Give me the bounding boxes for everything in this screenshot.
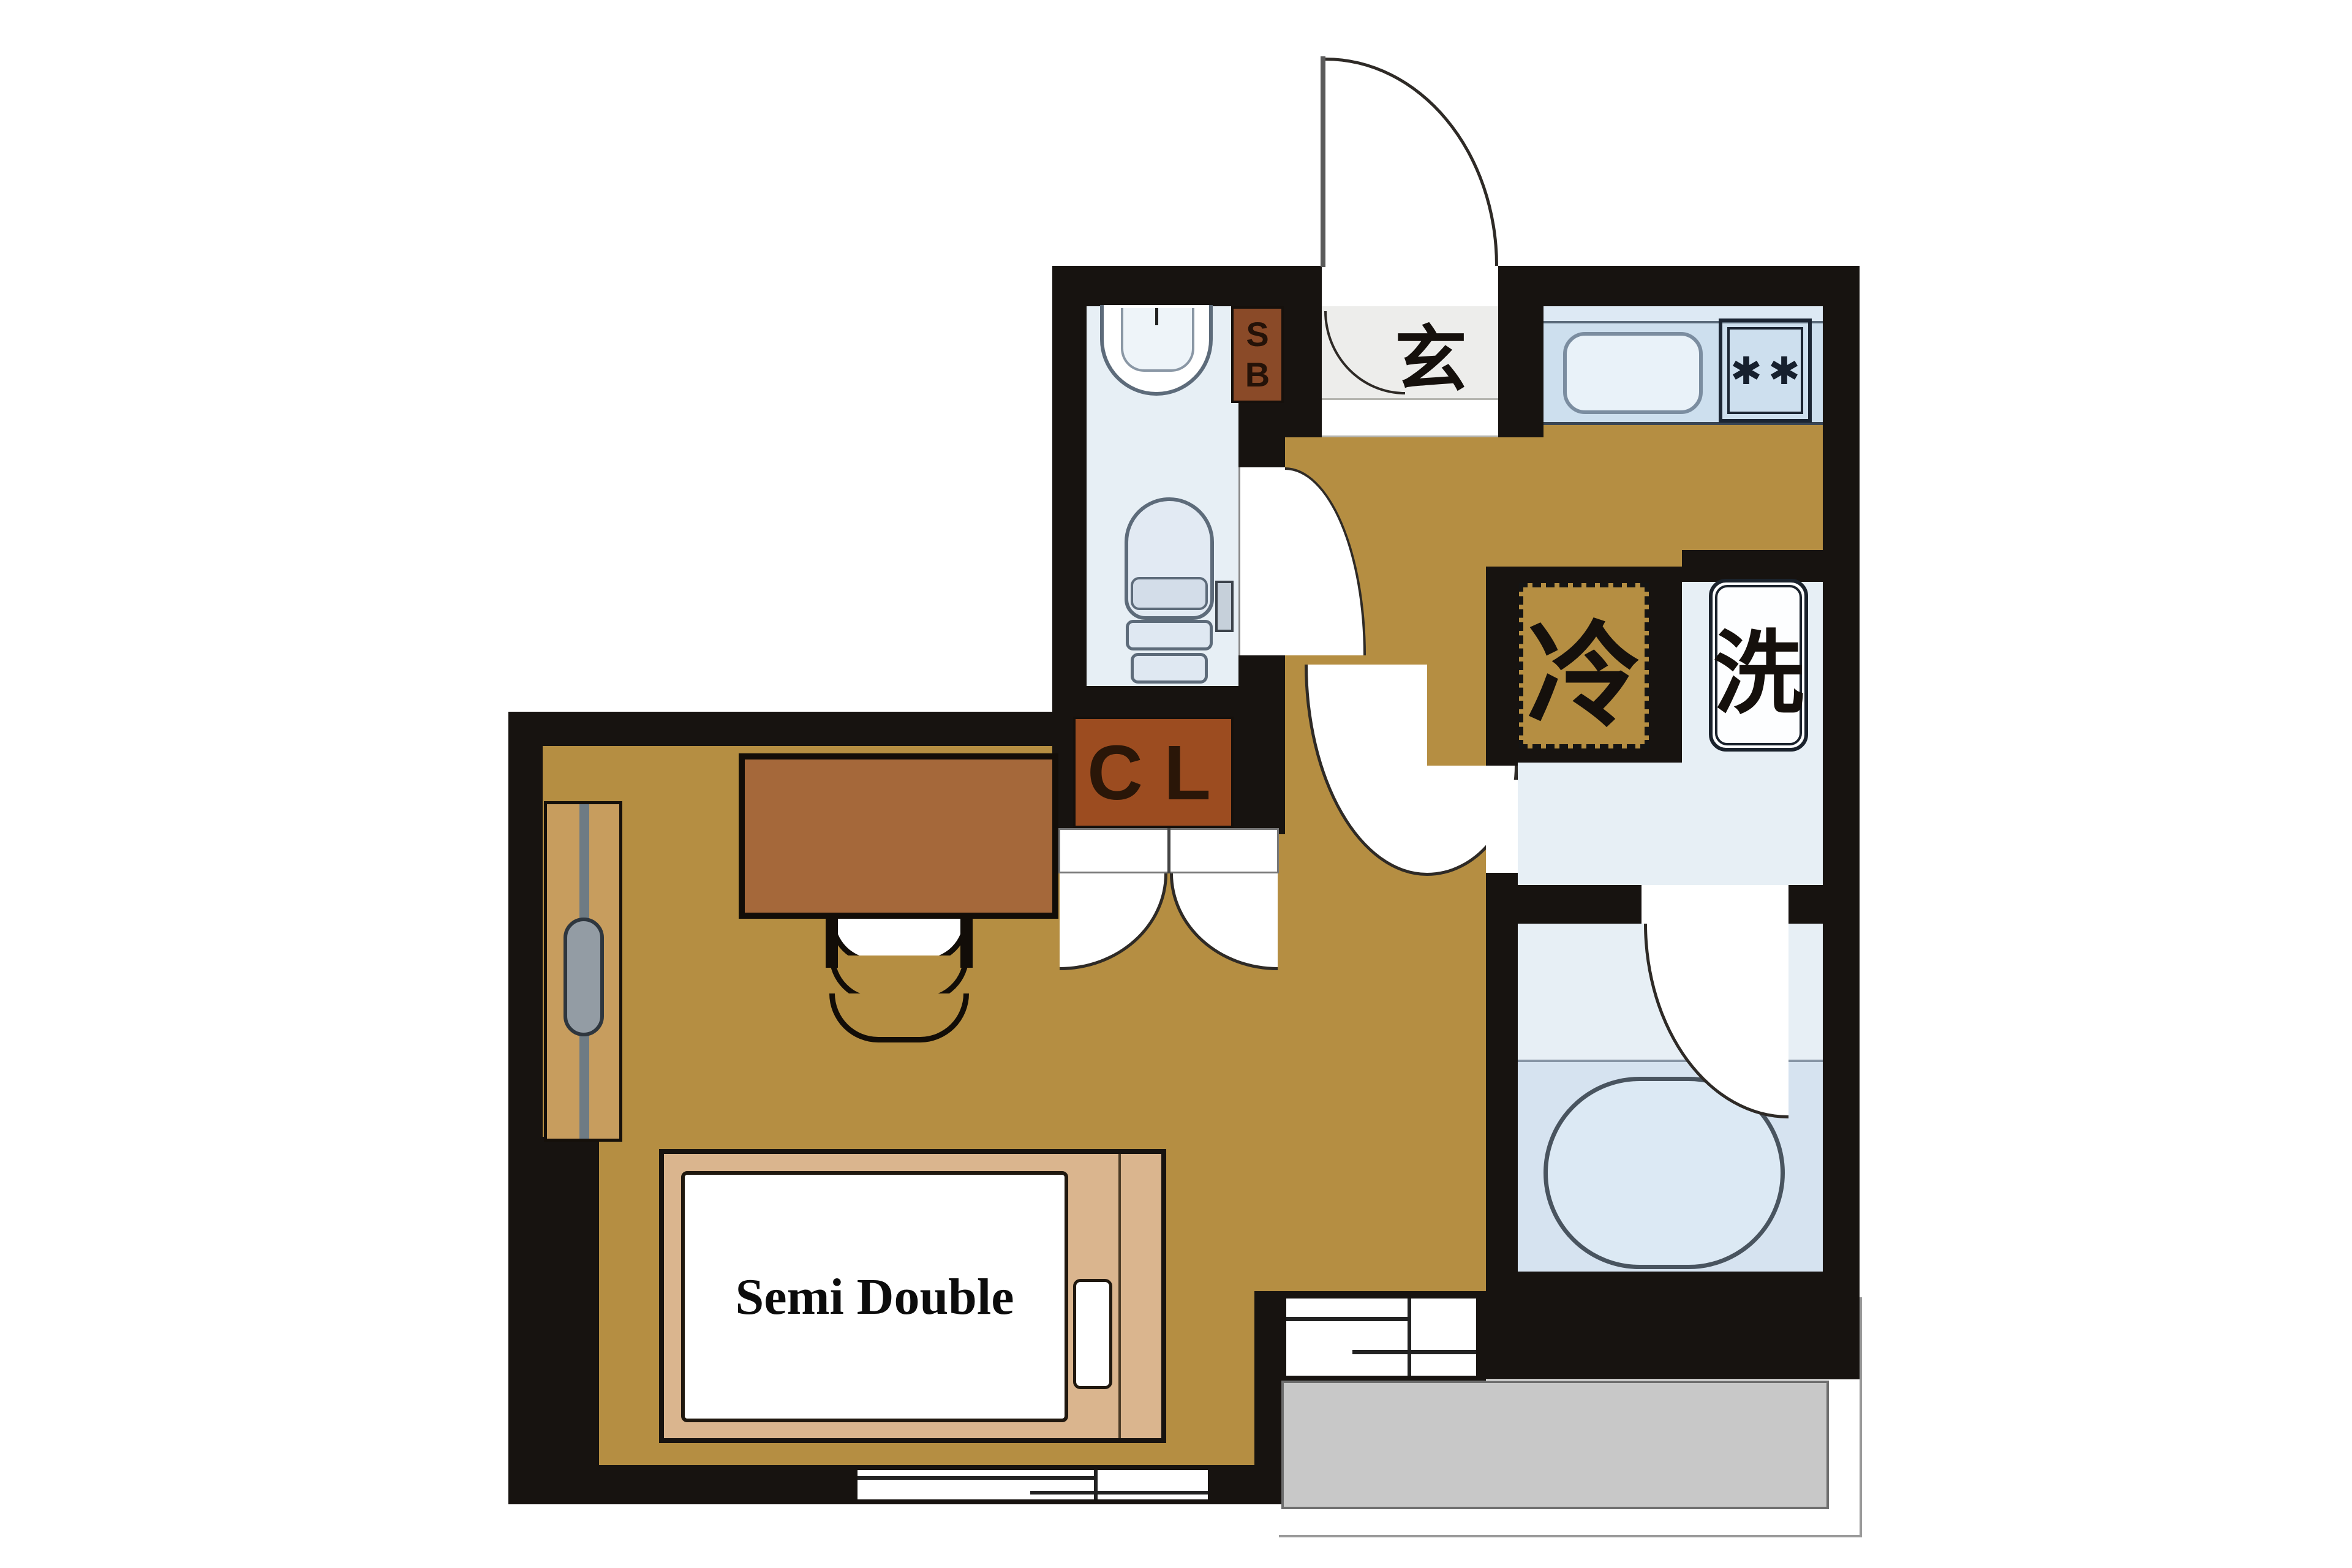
closet-door-divider xyxy=(1167,828,1170,873)
entrance-label: 玄 xyxy=(1363,310,1498,396)
bottom-window-rail-left xyxy=(858,1476,1096,1480)
shoebox-label-b: B xyxy=(1245,355,1270,395)
shoebox-label-s: S xyxy=(1246,314,1268,355)
balcony-deck xyxy=(1281,1381,1829,1509)
closet: CL xyxy=(1073,717,1234,828)
bathroom-door-gap xyxy=(1642,885,1789,924)
stove-burner-right: ✱ xyxy=(1768,349,1800,393)
left-window-handle xyxy=(563,918,604,1036)
fridge-space: 冷 xyxy=(1519,583,1649,748)
bed-pillow xyxy=(1073,1279,1112,1389)
floor-plan: S B 玄 ✱ ✱ 冷 洗 CL Semi Double xyxy=(0,0,2352,1568)
bottom-window-stile xyxy=(1094,1470,1098,1499)
washroom-door-gap xyxy=(1486,780,1518,873)
entrance-door-leaf xyxy=(1321,56,1325,267)
balcony-door-stile xyxy=(1408,1298,1411,1376)
washer-space-inner: 洗 xyxy=(1715,585,1802,745)
chair-side-right xyxy=(960,919,973,968)
balcony-door-rail-left xyxy=(1286,1317,1410,1321)
wall-bath-bottom-band xyxy=(1486,1272,1860,1379)
wall-main-top xyxy=(508,712,1087,746)
wall-hall-washroom xyxy=(1486,665,1518,1272)
balcony-door xyxy=(1286,1298,1476,1376)
balcony-door-rail-right xyxy=(1352,1350,1476,1354)
wall-right xyxy=(1823,266,1860,1297)
chair-side-left xyxy=(826,919,838,968)
washbasin-tap xyxy=(1155,308,1158,325)
entrance-door-arc xyxy=(1325,58,1498,266)
wall-washroom-top xyxy=(1682,550,1823,582)
wall-genkan-right xyxy=(1498,266,1543,437)
toilet-handle xyxy=(1215,581,1234,632)
stove-inner: ✱ ✱ xyxy=(1727,327,1803,414)
kitchen-floor xyxy=(1486,425,1823,567)
bed-label: Semi Double xyxy=(735,1267,1014,1327)
bed-mattress: Semi Double xyxy=(681,1171,1068,1422)
wall-genkan-left xyxy=(1285,266,1322,437)
bottom-window xyxy=(858,1470,1208,1499)
bed-board-line xyxy=(1118,1154,1121,1438)
stove-burner-left: ✱ xyxy=(1730,349,1762,393)
toilet-tank-lower xyxy=(1131,653,1208,684)
bottom-window-rail-right xyxy=(1030,1491,1208,1494)
wall-upper-left xyxy=(1052,266,1087,746)
toilet-door-gap xyxy=(1238,467,1285,655)
shoebox: S B xyxy=(1231,306,1284,403)
toilet-tank xyxy=(1126,620,1213,650)
desk xyxy=(739,753,1058,919)
toilet-seat-line xyxy=(1131,577,1208,610)
closet-label: CL xyxy=(1075,728,1232,817)
wall-left-thick xyxy=(508,1137,599,1504)
kitchen-sink xyxy=(1563,332,1703,414)
